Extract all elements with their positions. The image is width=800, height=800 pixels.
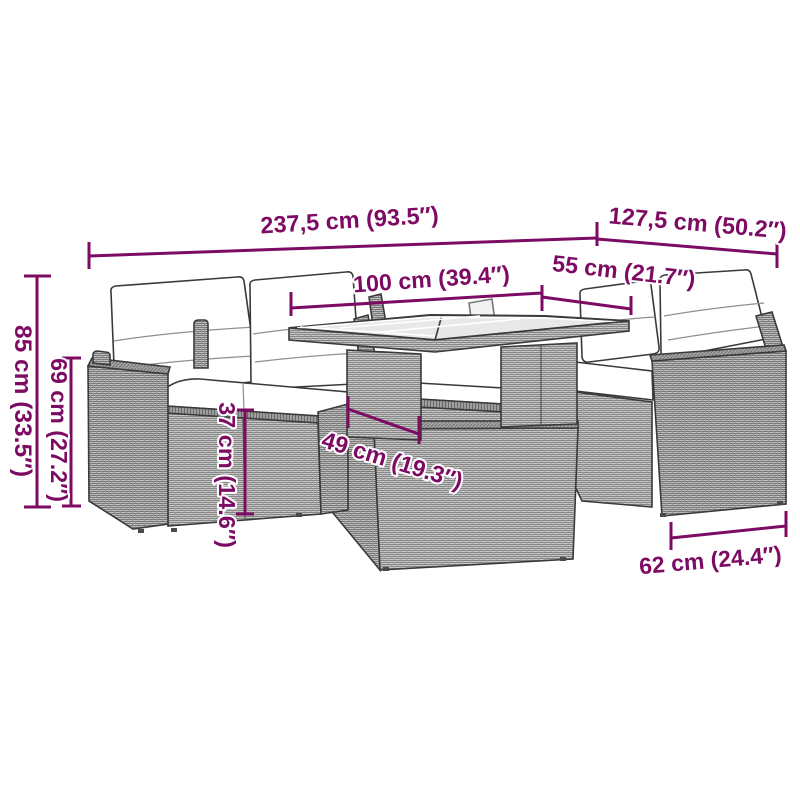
svg-text:37 cm (14.6″): 37 cm (14.6″) xyxy=(214,402,240,548)
svg-text:85 cm (33.5″): 85 cm (33.5″) xyxy=(9,325,36,477)
svg-text:69 cm (27.2″): 69 cm (27.2″) xyxy=(46,358,72,502)
